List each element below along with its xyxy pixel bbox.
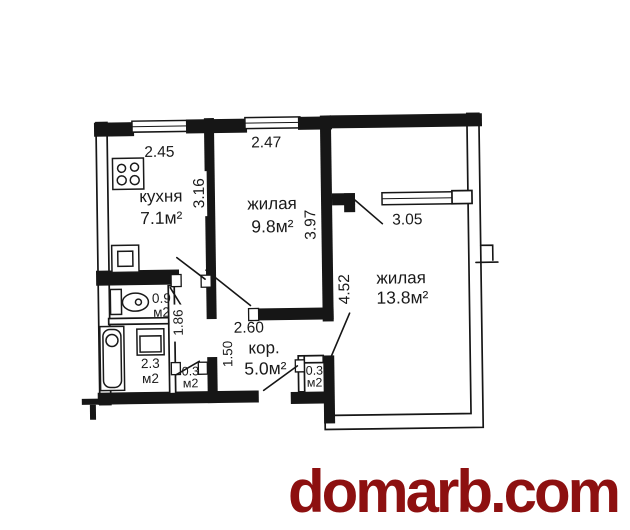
bathtub-icon xyxy=(100,326,125,390)
wall-bottom-left xyxy=(98,390,259,404)
building-edge-tick xyxy=(90,405,96,420)
dim-living-small-depth: 3.97 xyxy=(302,210,319,240)
kitchen-sink-icon xyxy=(112,245,139,272)
wall-top-corner xyxy=(94,122,134,137)
closet-left-door-jamb-right xyxy=(198,362,207,374)
living-small-area: 9.8м² xyxy=(251,216,294,237)
background xyxy=(0,0,630,530)
watermark-text: domarb.com xyxy=(288,458,618,525)
stove-icon xyxy=(112,158,143,189)
corridor-area: 5.0м² xyxy=(244,358,287,379)
wall-balcony-right xyxy=(452,190,472,203)
closet-right-unit: м2 xyxy=(307,376,323,390)
kitchen-label: кухня xyxy=(139,186,182,206)
dim-kitchen-width: 2.45 xyxy=(144,144,174,161)
closet-left-unit: м2 xyxy=(183,376,199,390)
wall-living-small-bottom xyxy=(252,307,334,320)
building-edge-mark xyxy=(82,399,100,405)
wall-closet-left-right xyxy=(207,357,218,403)
wall-top-right-section xyxy=(330,113,482,128)
floor-plan: 2.45 кухня 7.1м² 3.16 2.47 жилая 9.8м² 3… xyxy=(0,0,630,530)
corridor-label: кор. xyxy=(248,338,280,357)
wall-balcony-door-jamb xyxy=(344,193,355,212)
bathroom-unit: м2 xyxy=(142,371,159,386)
dim-wc-depth: 1.86 xyxy=(171,309,186,335)
kitchen-area: 7.1м² xyxy=(140,207,183,228)
wc-area: 0.9 xyxy=(152,291,171,306)
wall-bottom-entrance-right xyxy=(291,391,332,404)
wall-living-divider-lower xyxy=(323,355,335,423)
dim-kitchen-depth: 3.16 xyxy=(191,178,208,208)
living-small-label: жилая xyxy=(247,194,297,214)
dim-living-large-depth: 4.52 xyxy=(336,274,353,304)
wall-top-pier xyxy=(186,119,247,134)
dim-corridor-width: 2.60 xyxy=(234,319,265,336)
washbasin-icon xyxy=(137,329,164,355)
dim-corridor-passage: 1.50 xyxy=(220,341,235,367)
living-large-label: жилая xyxy=(376,268,426,288)
kitchen-door-jamb-left xyxy=(171,275,181,287)
dim-living-small-width: 2.47 xyxy=(251,134,281,151)
living-large-area: 13.8м² xyxy=(376,287,428,308)
dim-balcony-window: 3.05 xyxy=(392,211,422,228)
bathroom-area: 2.3 xyxy=(141,356,160,371)
wc-unit: м2 xyxy=(153,305,170,320)
